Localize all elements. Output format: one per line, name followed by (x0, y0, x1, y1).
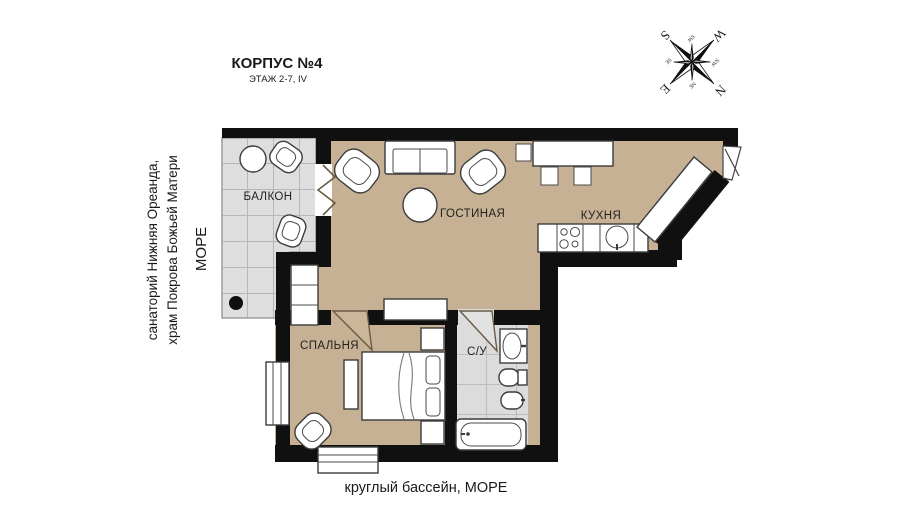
landmarks-line2: храм Покрова Божьей Матери (165, 155, 180, 345)
floor-plan-svg: БАЛКОН ГОСТИНАЯ КУХНЯ СПАЛЬНЯ С/У КОРПУС… (0, 0, 900, 517)
floor-plan-page: БАЛКОН ГОСТИНАЯ КУХНЯ СПАЛЬНЯ С/У КОРПУС… (0, 0, 900, 517)
coffee-table (403, 188, 437, 222)
compass-north-label: N (712, 82, 730, 100)
bidet (501, 392, 525, 409)
bottom-label: круглый бассейн, МОРЕ (345, 480, 508, 496)
sea-left-label: МОРЕ (193, 227, 210, 271)
balcony-label: БАЛКОН (244, 191, 293, 203)
bed (362, 352, 445, 420)
entry-door (723, 146, 741, 180)
compass-northeast-label: NE (687, 80, 697, 90)
plan-title: КОРПУС №4 (231, 55, 323, 72)
compass-southwest-label: SW (685, 33, 696, 44)
nightstand-bottom (421, 421, 444, 444)
hall-console (384, 299, 447, 320)
bedroom-window-bottom (318, 447, 378, 473)
bedroom-bench (344, 360, 358, 409)
landmarks-line1: санаторий Нижняя Ореанда, (145, 160, 160, 341)
compass-south-label: S (658, 28, 674, 44)
compass-southeast-label: SE (663, 56, 672, 65)
sofa (385, 141, 455, 174)
bathroom-label: С/У (467, 346, 487, 358)
compass-rose: N E S W NE SE SW NW (630, 0, 757, 126)
kitchen-counter (538, 224, 648, 252)
bedroom-label: СПАЛЬНЯ (300, 340, 359, 352)
compass-northwest-label: NW (709, 57, 720, 68)
living-room-label: ГОСТИНАЯ (440, 208, 505, 220)
plan-subtitle: ЭТАЖ 2-7, IV (249, 74, 308, 85)
bath-sink (500, 329, 527, 363)
balcony-folding-door (315, 164, 335, 216)
kitchen-label: КУХНЯ (581, 210, 621, 222)
balcony-column-dot (229, 296, 243, 310)
toilet (499, 369, 527, 386)
bedroom-window-left (266, 362, 289, 425)
nightstand-top (421, 328, 444, 350)
hall-wardrobe (291, 265, 318, 325)
balcony-table (240, 146, 266, 172)
bathtub (456, 419, 526, 450)
